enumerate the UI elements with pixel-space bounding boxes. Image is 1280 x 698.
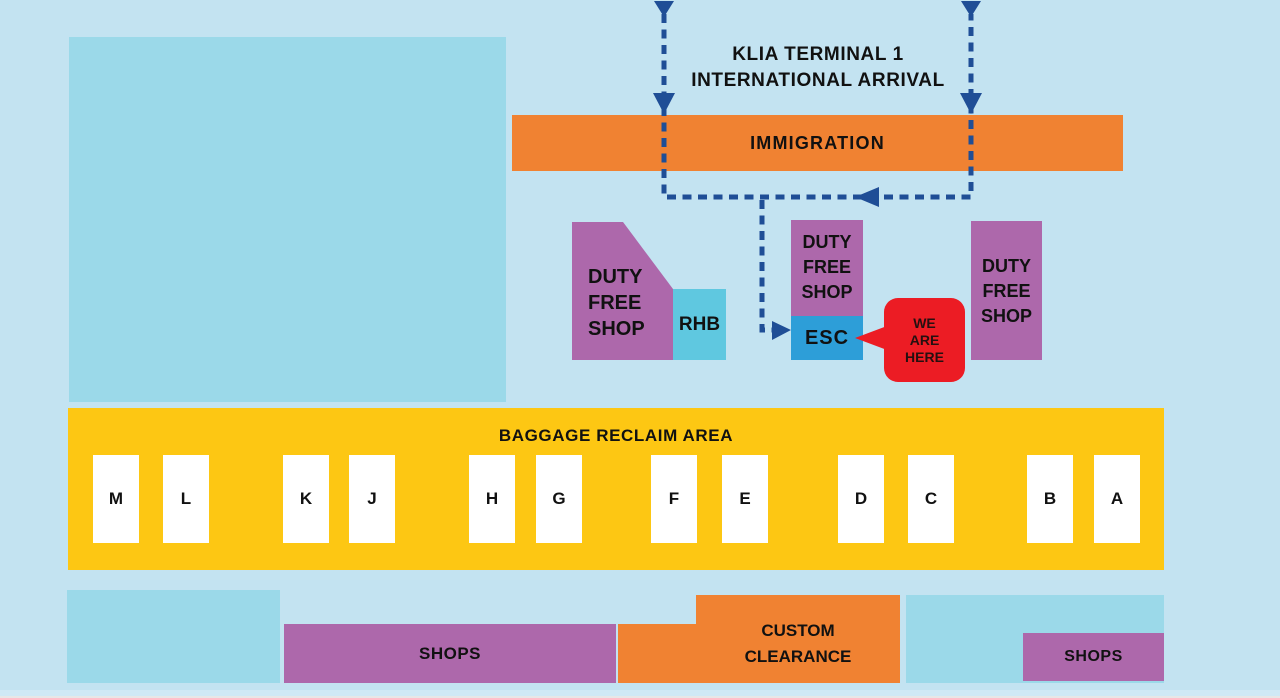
- baggage-belt-D: D: [838, 455, 884, 543]
- arrow-down-top-right-icon: [961, 1, 981, 17]
- baggage-belt-A: A: [1094, 455, 1140, 543]
- baggage-belt-H: H: [469, 455, 515, 543]
- arrow-down-top-left-icon: [654, 1, 674, 17]
- baggage-reclaim-title: BAGGAGE RECLAIM AREA: [68, 426, 1164, 446]
- map-title-line1: KLIA TERMINAL 1: [640, 42, 996, 68]
- arrow-left-icon: [855, 187, 879, 207]
- duty-free-left-line2: FREE: [588, 290, 673, 316]
- map-title: KLIA TERMINAL 1 INTERNATIONAL ARRIVAL: [640, 42, 996, 94]
- shops-block-right: SHOPS: [1023, 633, 1164, 681]
- baggage-belt-C: C: [908, 455, 954, 543]
- duty-free-left-line3: SHOP: [588, 316, 673, 342]
- we-are-here-marker-tail: [855, 326, 887, 350]
- duty-free-shop-right: DUTY FREE SHOP: [971, 221, 1042, 360]
- custom-clearance-block: CUSTOM CLEARANCE: [618, 595, 900, 683]
- baggage-belt-B: B: [1027, 455, 1073, 543]
- arrow-right-esc-icon: [772, 321, 791, 340]
- shops-right-label: SHOPS: [1064, 648, 1123, 666]
- duty-free-center-line2: FREE: [791, 255, 863, 280]
- shops-block-left: SHOPS: [284, 624, 616, 683]
- route-drop-line: [762, 200, 774, 330]
- baggage-belt-E: E: [722, 455, 768, 543]
- immigration-label: IMMIGRATION: [750, 133, 885, 154]
- baggage-belt-M: M: [93, 455, 139, 543]
- esc-label: ESC: [805, 327, 849, 350]
- rhb-bank-block: RHB: [673, 289, 726, 360]
- shops-left-label: SHOPS: [419, 644, 481, 664]
- immigration-zone: IMMIGRATION: [512, 115, 1123, 171]
- map-title-line2: INTERNATIONAL ARRIVAL: [640, 68, 996, 94]
- baggage-belt-F: F: [651, 455, 697, 543]
- baggage-reclaim-area: BAGGAGE RECLAIM AREA MLKJHGFEDCBA: [68, 408, 1164, 570]
- bottom-left-area-block: [67, 590, 280, 683]
- custom-clearance-line1: CUSTOM: [696, 618, 900, 644]
- we-are-here-marker: WE ARE HERE: [884, 298, 965, 382]
- we-are-here-line2: ARE: [910, 332, 940, 349]
- upper-left-area-block: [69, 37, 506, 402]
- duty-free-center-line3: SHOP: [791, 280, 863, 305]
- we-are-here-line3: HERE: [905, 349, 944, 366]
- we-are-here-line1: WE: [913, 315, 936, 332]
- duty-free-left-line1: DUTY: [588, 264, 673, 290]
- duty-free-right-line3: SHOP: [971, 304, 1042, 329]
- baggage-belt-J: J: [349, 455, 395, 543]
- custom-clearance-label: CUSTOM CLEARANCE: [696, 618, 900, 670]
- custom-clearance-line2: CLEARANCE: [696, 644, 900, 670]
- arrow-down-right-icon: [960, 93, 982, 114]
- arrow-down-left-icon: [653, 93, 675, 114]
- duty-free-right-line1: DUTY: [971, 254, 1042, 279]
- duty-free-center-line1: DUTY: [791, 230, 863, 255]
- baggage-belt-K: K: [283, 455, 329, 543]
- terminal-map: KLIA TERMINAL 1 INTERNATIONAL ARRIVAL IM…: [0, 0, 1280, 698]
- baggage-belt-G: G: [536, 455, 582, 543]
- duty-free-right-line2: FREE: [971, 279, 1042, 304]
- escalator-block: ESC: [791, 316, 863, 360]
- duty-free-shop-left: DUTY FREE SHOP: [572, 222, 673, 360]
- rhb-label: RHB: [679, 314, 720, 336]
- baggage-belt-L: L: [163, 455, 209, 543]
- duty-free-shop-center: DUTY FREE SHOP: [791, 220, 863, 316]
